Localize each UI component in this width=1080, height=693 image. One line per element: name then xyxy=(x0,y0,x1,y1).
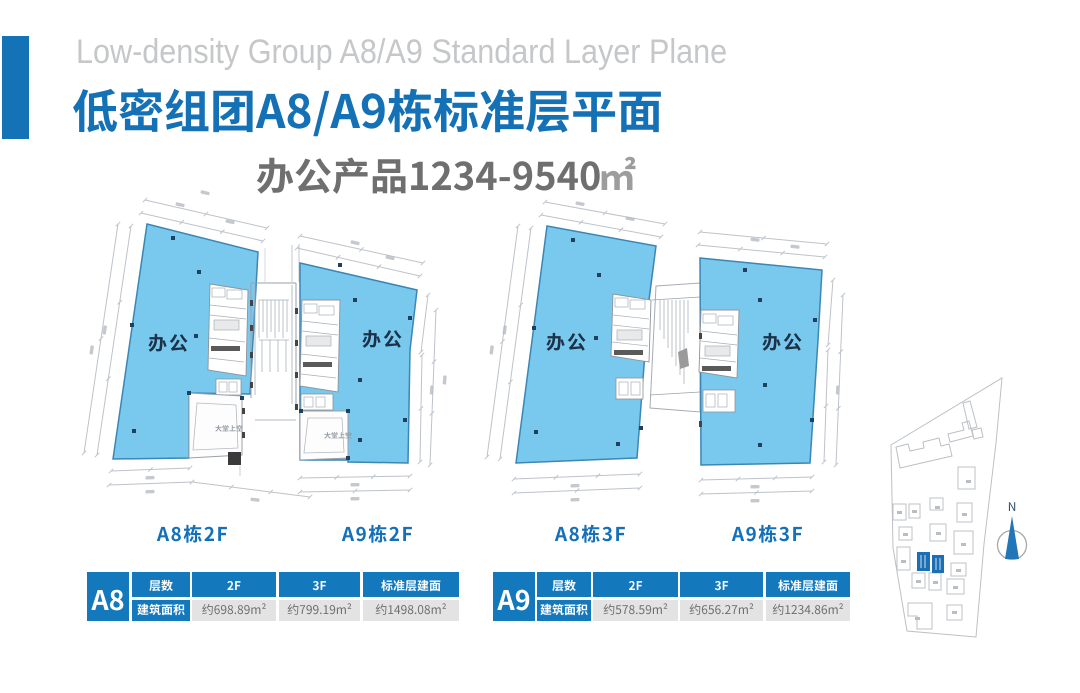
svg-text:Low-density Group A8/A9 Standa: Low-density Group A8/A9 Standard Layer P… xyxy=(76,33,727,71)
